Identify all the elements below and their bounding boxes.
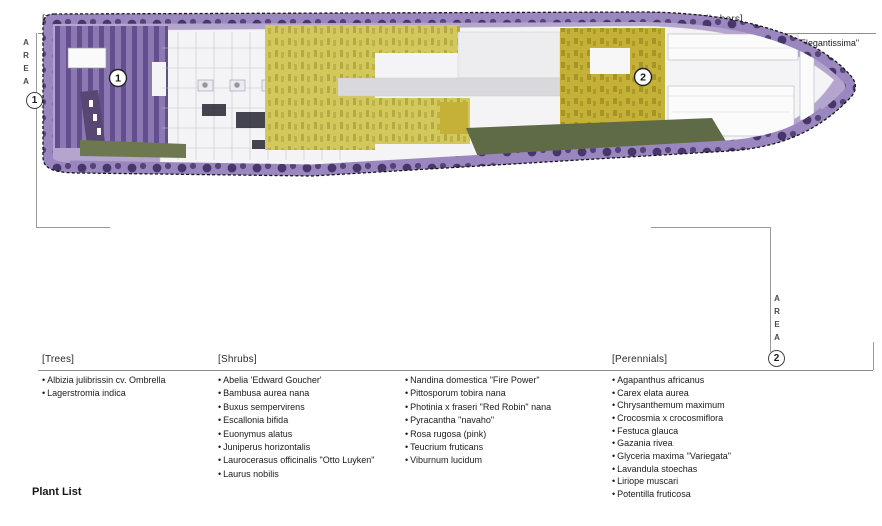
plant-item: Rosa rugosa (pink) bbox=[405, 428, 595, 441]
area2-shrubs-col1: Abelia 'Edward Goucher'Bambusa aurea nan… bbox=[218, 374, 403, 481]
area2-rule-right-end bbox=[873, 342, 874, 370]
plant-item: Glyceria maxima "Variegata" bbox=[612, 450, 762, 463]
plant-item: Liriope muscari bbox=[612, 475, 762, 488]
plant-item: Photinia x fraseri "Red Robin" nana bbox=[405, 401, 595, 414]
plant-item: Laurocerasus officinalis "Otto Luyken" bbox=[218, 454, 403, 467]
area2-label-letter: E bbox=[770, 318, 784, 331]
area2-trees-list: [Trees] Albizia julibrissin cv. Ombrella… bbox=[42, 354, 202, 401]
plant-item: Nandina domestica "Fire Power" bbox=[405, 374, 595, 387]
area2-shrubs-list: [Shrubs] Abelia 'Edward Goucher'Bambusa … bbox=[218, 354, 403, 481]
area2-label: AREA bbox=[770, 292, 784, 344]
striped-garden bbox=[55, 26, 168, 152]
plant-item: Carex elata aurea bbox=[612, 387, 762, 400]
svg-text:1: 1 bbox=[115, 73, 121, 85]
area2-shrubs-header: [Shrubs] bbox=[218, 354, 403, 366]
area2-leader-hline bbox=[651, 227, 770, 228]
area2-trees-items: Albizia julibrissin cv. OmbrellaLagerstr… bbox=[42, 374, 202, 401]
plant-item: Agapanthus africanus bbox=[612, 374, 762, 387]
plant-item: Albizia julibrissin cv. Ombrella bbox=[42, 374, 202, 387]
plant-item: Pyracantha "navaho" bbox=[405, 414, 595, 427]
plant-item: Lavandula stoechas bbox=[612, 463, 762, 476]
svg-text:2: 2 bbox=[640, 72, 646, 84]
area1-leader-hline bbox=[36, 227, 110, 228]
area2-shrubs-col2: Nandina domestica "Fire Power"Pittosporu… bbox=[405, 374, 595, 468]
plant-item: Escallonia bifida bbox=[218, 414, 403, 427]
building-notch bbox=[152, 62, 166, 96]
area2-plan-marker: 2 bbox=[635, 69, 652, 86]
plant-item: Buxus sempervirens bbox=[218, 401, 403, 414]
plant-item: Lagerstromia indica bbox=[42, 387, 202, 400]
plant-item: Laurus nobilis bbox=[218, 468, 403, 481]
small-building bbox=[68, 48, 106, 68]
area1-plan-marker: 1 bbox=[110, 70, 127, 87]
plant-item: Teucrium fruticans bbox=[405, 441, 595, 454]
plant-item: Juniperus horizontalis bbox=[218, 441, 403, 454]
mustard-roof-hole bbox=[590, 48, 630, 74]
area2-perennials-header: [Perennials] bbox=[612, 354, 762, 366]
roof-gray-strip bbox=[338, 78, 560, 96]
plant-item: Crocosmia x crocosmiflora bbox=[612, 412, 762, 425]
plant-item: Gazania rivea bbox=[612, 437, 762, 450]
area2-label-letter: A bbox=[770, 331, 784, 344]
page-title: Plant List bbox=[32, 486, 82, 498]
plant-item: Viburnum lucidum bbox=[405, 454, 595, 467]
plant-item: Potentilla fruticosa bbox=[612, 488, 762, 501]
site-plan: 1 2 bbox=[0, 0, 882, 200]
plant-item: Chrysanthemum maximum bbox=[612, 399, 762, 412]
mustard-small bbox=[440, 102, 468, 134]
plant-item: Euonymus alatus bbox=[218, 428, 403, 441]
area2-label-letter: R bbox=[770, 305, 784, 318]
plant-item: Abelia 'Edward Goucher' bbox=[218, 374, 403, 387]
plant-item: Bambusa aurea nana bbox=[218, 387, 403, 400]
roof-white bbox=[458, 32, 560, 78]
area2-perennials-items: Agapanthus africanusCarex elata aureaChr… bbox=[612, 374, 762, 501]
area2-number-badge: 2 bbox=[768, 350, 785, 367]
plant-item: Festuca glauca bbox=[612, 425, 762, 438]
area2-trees-header: [Trees] bbox=[42, 354, 202, 366]
plant-item: Pittosporum tobira nana bbox=[405, 387, 595, 400]
area2-label-letter: A bbox=[770, 292, 784, 305]
area2-perennials-list: [Perennials] Agapanthus africanusCarex e… bbox=[612, 354, 762, 501]
plant-list-page: AREA 1 [Trees] Ligustrum japonicumLiquid… bbox=[0, 0, 882, 526]
